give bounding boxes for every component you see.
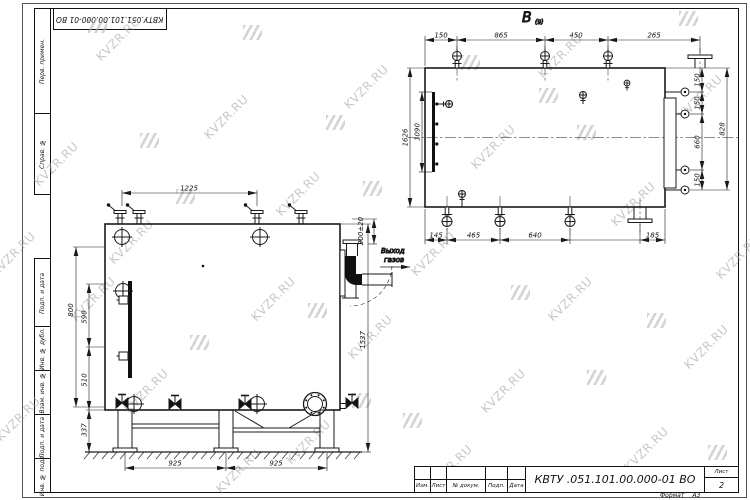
level-gauge-strip [117, 281, 133, 378]
dim-text: 150 [694, 73, 702, 87]
title-block: Изм. Лист № докум. Подп. Дата КВТУ .051.… [414, 466, 739, 493]
safety-valve-icon [288, 203, 307, 224]
tb-col-izm: Изм. [415, 480, 430, 492]
dim-text: 150 [694, 173, 702, 187]
format-note: ФорматА3 [660, 492, 708, 499]
drain-valve-icon [116, 395, 128, 409]
valve-icon [495, 207, 505, 227]
dim-text: 925 [168, 460, 182, 468]
valve-icon [442, 207, 452, 227]
dim-text: 640 [528, 232, 542, 240]
title-block-columns: Изм. Лист № докум. Подп. Дата [415, 467, 526, 492]
front-view-shell [105, 224, 340, 410]
safety-valve-icon [107, 203, 126, 224]
valve-icon [453, 49, 462, 68]
sheet-number: 2 [705, 478, 738, 492]
view-label: В [522, 10, 532, 26]
valve-icon [541, 49, 550, 68]
boiler-drawing: В (9) [0, 0, 750, 500]
dim-text: 200±20 [357, 216, 365, 245]
dim-text: 145 [429, 232, 443, 240]
dim-text: 800 [67, 303, 75, 317]
dim-text: 590 [81, 310, 89, 324]
ground-line [84, 452, 362, 459]
flange-nozzle-icon [628, 207, 652, 223]
valve-icon [604, 49, 613, 68]
view-label-sub: (9) [535, 19, 544, 26]
document-number: КВТУ .051.101.00.000-01 ВО [526, 467, 705, 492]
front-view: Выход газов [67, 185, 410, 472]
drain-valve-icon [169, 396, 181, 410]
drain-valve-icon [239, 396, 251, 410]
tb-col-dokum: № докум. [447, 480, 485, 492]
dim-text: 1537 [359, 331, 367, 349]
tb-col-podp: Подп. [486, 480, 507, 492]
outlet-label-line1: Выход [381, 247, 405, 255]
dim-text: 510 [81, 373, 89, 387]
tb-col-data: Дата [508, 480, 525, 492]
hatch-mark-icon [112, 227, 132, 247]
dim-text: 465 [467, 232, 481, 240]
safety-valve-icon [244, 203, 263, 224]
top-view: В (9) [402, 10, 742, 244]
centerlines [408, 46, 741, 234]
dim-text: 265 [647, 32, 661, 40]
dim-text: 1626 [402, 128, 410, 146]
valve-icon [440, 101, 453, 108]
dim-text: 185 [646, 232, 660, 240]
hatch-mark-icon [250, 227, 270, 247]
level-gauge-bar [432, 92, 435, 172]
format-label: Формат [660, 492, 684, 499]
supports [113, 410, 339, 452]
drawing-sheet: KVZR.RU KVZR.RU KVZR.RU KVZR.RU KVZR.RU … [0, 0, 750, 500]
dim-text: 150 [694, 96, 702, 110]
valve-icon [580, 92, 587, 105]
drain-valve-icon [346, 395, 358, 409]
burner-flange-icon [304, 393, 327, 416]
dim-text: 1090 [414, 123, 422, 141]
water-gauge-column [664, 88, 689, 194]
safety-valve-icon [126, 203, 145, 224]
outlet-label-line2: газов [384, 256, 404, 264]
valve-icon [565, 207, 575, 227]
dim-text: 865 [494, 32, 508, 40]
sheet-label: Лист [705, 467, 738, 478]
dim-text: 337 [81, 423, 89, 437]
tb-col-list: Лист [431, 480, 446, 492]
front-view-dimensions [73, 190, 377, 471]
valve-icon [624, 80, 630, 91]
dim-text: 1225 [180, 185, 198, 193]
sheet-cell: Лист 2 [705, 467, 738, 492]
dim-text: 925 [269, 460, 283, 468]
dim-text: 450 [569, 32, 583, 40]
format-value: А3 [692, 492, 700, 499]
dim-text: 150 [434, 32, 448, 40]
dim-text: 828 [719, 122, 727, 136]
dim-text: 660 [694, 135, 702, 149]
